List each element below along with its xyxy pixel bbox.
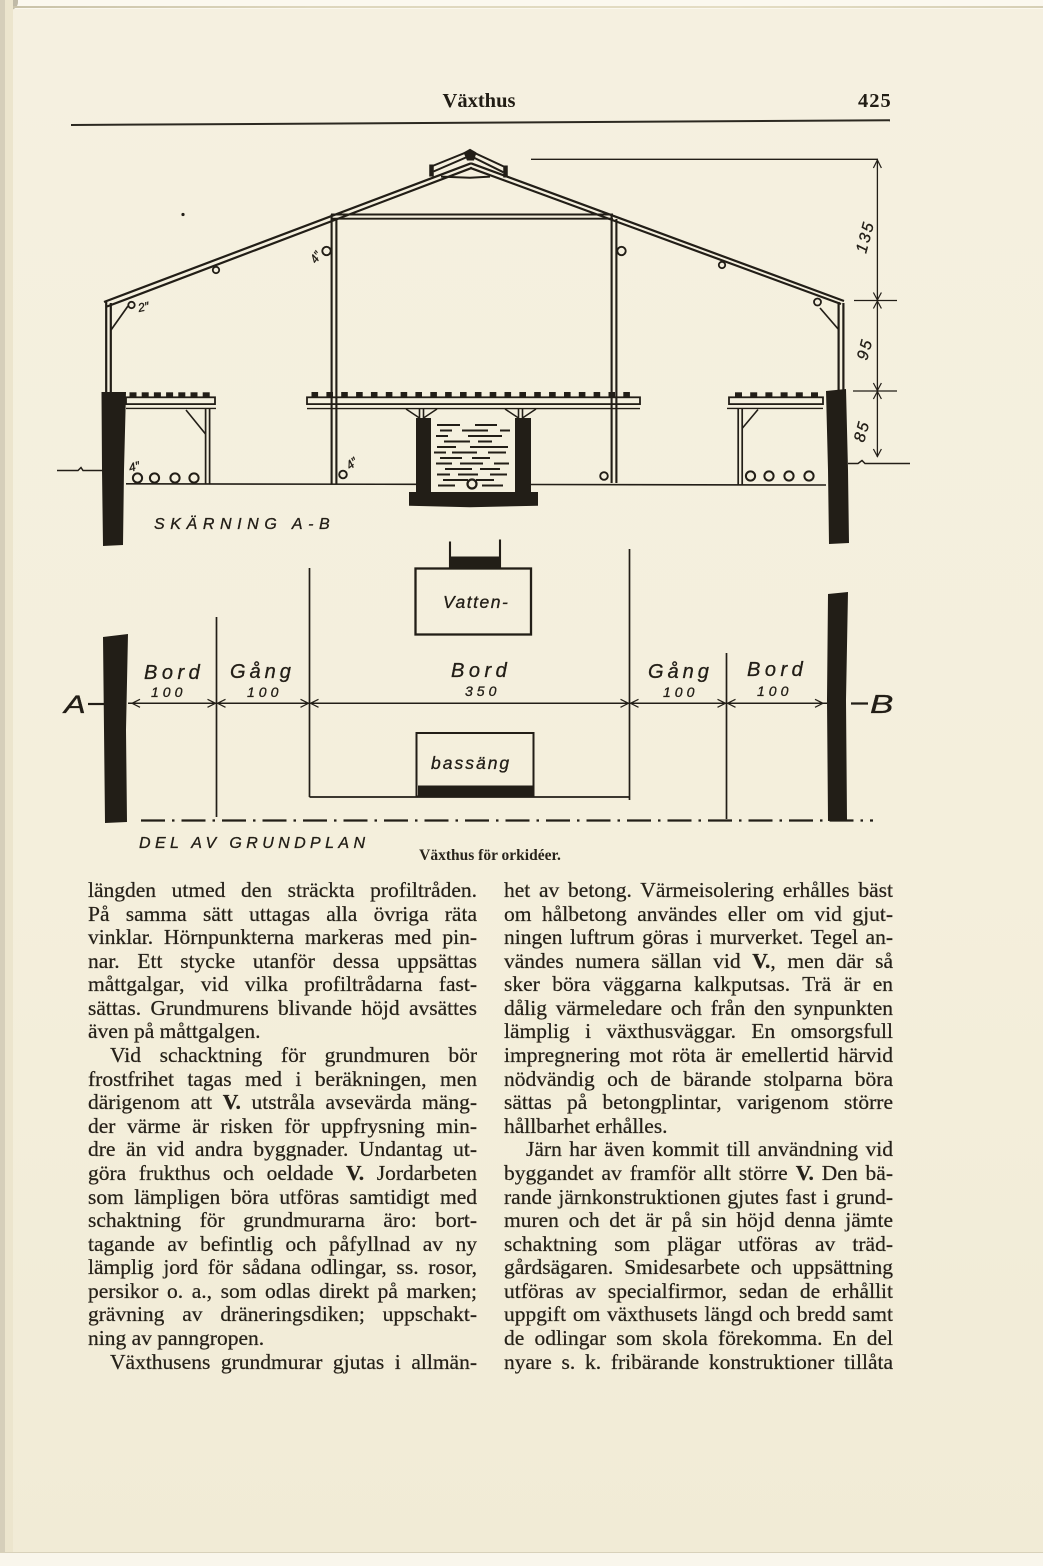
svg-text:85: 85 xyxy=(851,419,873,444)
svg-text:B: B xyxy=(870,689,893,718)
svg-text:4″: 4″ xyxy=(127,458,142,475)
svg-text:Bord: Bord xyxy=(144,662,204,684)
svg-text:4″: 4″ xyxy=(343,454,361,472)
svg-text:Gång: Gång xyxy=(648,661,713,683)
svg-text:Gång: Gång xyxy=(230,661,295,683)
svg-text:Bord: Bord xyxy=(747,659,807,681)
svg-text:Vatten-: Vatten- xyxy=(443,592,509,612)
svg-text:135: 135 xyxy=(853,219,878,255)
svg-text:95: 95 xyxy=(854,337,876,362)
svg-text:SKÄRNING A-B: SKÄRNING A-B xyxy=(154,515,335,533)
svg-text:100: 100 xyxy=(151,684,186,700)
svg-text:350: 350 xyxy=(465,683,500,699)
svg-text:A: A xyxy=(62,691,86,719)
svg-text:2″: 2″ xyxy=(136,299,151,315)
svg-text:100: 100 xyxy=(757,683,792,699)
svg-text:DEL AV GRUNDPLAN: DEL AV GRUNDPLAN xyxy=(139,835,369,852)
svg-text:Bord: Bord xyxy=(451,660,511,682)
svg-text:100: 100 xyxy=(663,684,698,700)
svg-text:100: 100 xyxy=(247,684,282,700)
svg-text:bassäng: bassäng xyxy=(431,753,511,773)
